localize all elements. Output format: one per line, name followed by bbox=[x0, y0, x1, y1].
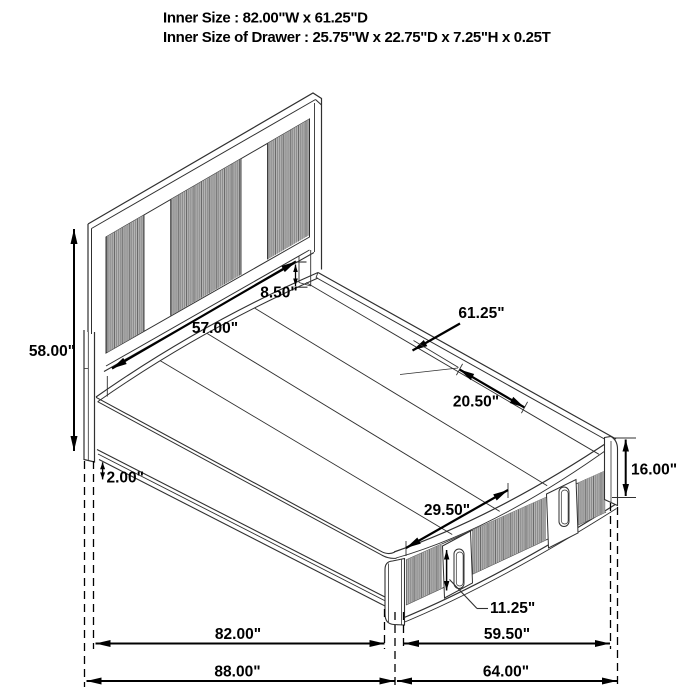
svg-text:2.00": 2.00" bbox=[107, 470, 145, 487]
svg-text:88.00": 88.00" bbox=[214, 664, 260, 681]
svg-text:61.25": 61.25" bbox=[458, 305, 504, 322]
svg-text:29.50": 29.50" bbox=[424, 502, 470, 519]
svg-text:58.00": 58.00" bbox=[29, 343, 75, 360]
svg-text:Inner Size of Drawer : 25.75"W: Inner Size of Drawer : 25.75"W x 22.75"D… bbox=[163, 29, 551, 46]
svg-text:8.50": 8.50" bbox=[260, 285, 298, 302]
svg-text:82.00": 82.00" bbox=[215, 626, 261, 643]
svg-text:Inner Size : 82.00"W x 61.25"D: Inner Size : 82.00"W x 61.25"D bbox=[163, 10, 368, 27]
svg-text:59.50": 59.50" bbox=[484, 626, 530, 643]
svg-text:16.00": 16.00" bbox=[631, 462, 677, 479]
svg-text:11.25": 11.25" bbox=[490, 600, 535, 617]
svg-text:57.00": 57.00" bbox=[192, 320, 238, 337]
svg-text:20.50": 20.50" bbox=[453, 394, 499, 411]
svg-text:64.00": 64.00" bbox=[483, 664, 529, 681]
